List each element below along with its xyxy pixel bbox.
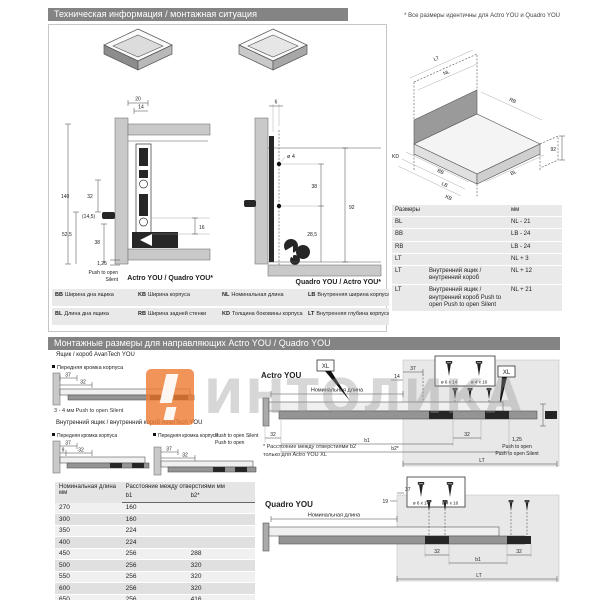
push-open-label: Push to open bbox=[215, 440, 245, 446]
dim-52-5: 52,5 bbox=[62, 232, 72, 238]
cell-nl: 270 bbox=[55, 503, 122, 514]
table-row: 400224 bbox=[55, 537, 255, 548]
legend-code: KD bbox=[222, 311, 230, 317]
cabinet-bottom-panel bbox=[268, 265, 381, 276]
footnote-line2: только для Actro YOU XL bbox=[263, 451, 356, 459]
drawer-iso-icon bbox=[237, 27, 309, 73]
dim-32: 32 bbox=[80, 380, 86, 386]
mounting-hook bbox=[507, 536, 531, 544]
dim-desc: Внутренний ящик / внутренний короб Push … bbox=[426, 285, 508, 311]
cell-b2: 320 bbox=[187, 572, 255, 583]
dim-b2: b2* bbox=[391, 446, 399, 452]
table-row: Размеры мм bbox=[392, 205, 562, 216]
dim-32: 32 bbox=[516, 549, 522, 555]
dim-code: BB bbox=[392, 229, 426, 240]
table-row: 500256320 bbox=[55, 560, 255, 571]
legend-code: LT bbox=[308, 311, 314, 317]
front-bracket bbox=[263, 523, 269, 551]
quadro-runner-drawing: ø 6 x 14 ø 4 x 16 Quadro YOU 37 19 Номин… bbox=[257, 473, 560, 597]
mounting-hook bbox=[213, 467, 225, 472]
mounting-hook bbox=[429, 411, 453, 419]
dim-9: 9 bbox=[62, 448, 65, 454]
dim-value: LB - 24 bbox=[508, 229, 562, 240]
panel-plug bbox=[244, 200, 256, 207]
header-nominal-text: Номинальная длина bbox=[59, 484, 116, 490]
iso-label-bb: BB bbox=[436, 168, 445, 176]
cabinet-side-panel bbox=[255, 118, 268, 264]
inner-avantech-label: Внутренний ящик / внутренний короб AvanT… bbox=[56, 420, 202, 426]
table-row: LT Внутренний ящик / внутренний короб NL… bbox=[392, 266, 562, 284]
table-row: LT Внутренний ящик / внутренний короб Pu… bbox=[392, 285, 562, 311]
legend-item: KDТолщина боковины корпуса bbox=[219, 308, 305, 325]
cell-b1: 256 bbox=[122, 595, 187, 600]
cabinet-front-panel bbox=[53, 373, 60, 405]
dim-14: 14 bbox=[394, 374, 400, 380]
cell-b1: 160 bbox=[122, 514, 187, 525]
legend-label: Внутренняя ширина корпуса bbox=[317, 292, 389, 298]
legend-label: Внутренняя глубина корпуса bbox=[316, 311, 389, 317]
iso-label-bl: BL bbox=[510, 169, 518, 177]
cell-nl: 300 bbox=[55, 514, 122, 525]
cell-b2 bbox=[187, 514, 255, 525]
cell-b1: 256 bbox=[122, 583, 187, 594]
cell-nl: 650 bbox=[55, 595, 122, 600]
dim-28-5: 28,5 bbox=[307, 232, 317, 238]
legend-item: RBШирина задней стенки bbox=[135, 308, 219, 325]
dim-code: BL bbox=[392, 217, 426, 228]
runner-top-rail bbox=[60, 457, 145, 463]
cell-nl: 450 bbox=[55, 549, 122, 560]
fixing-hole bbox=[277, 204, 281, 208]
drawer-bottom-panel bbox=[128, 249, 210, 260]
drawer-iso-icon bbox=[102, 27, 174, 73]
dim-value: NL + 21 bbox=[508, 285, 562, 311]
legend-label: Ширина корпуса bbox=[148, 292, 190, 298]
screw1-label: ø 6 x 14 bbox=[441, 380, 458, 385]
table-row: BB LB - 24 bbox=[392, 229, 562, 240]
dim-32: 32 bbox=[87, 194, 93, 200]
front-edge-label: Передняя кромка корпуса bbox=[57, 365, 124, 371]
runner-top-rail bbox=[269, 402, 503, 411]
header-mm-text: мм bbox=[59, 490, 67, 496]
legend-code: LB bbox=[308, 292, 315, 298]
table-row: 350224 bbox=[55, 526, 255, 537]
dim-desc bbox=[426, 242, 508, 253]
screw2-label: ø 4 x 16 bbox=[471, 380, 488, 385]
dim-code: LT bbox=[392, 254, 426, 265]
cell-b2: 320 bbox=[187, 583, 255, 594]
cross-section-actro: 20 14 140 32 (14,5) 52,5 38 16 1,25 Push… bbox=[60, 94, 215, 286]
dim-desc bbox=[426, 254, 508, 265]
iso-label-rb: RB bbox=[508, 97, 517, 106]
table-row: 300160 bbox=[55, 514, 255, 525]
dim-32: 32 bbox=[270, 432, 276, 438]
dim-38: 38 bbox=[547, 413, 553, 419]
dim-value: NL + 3 bbox=[508, 254, 562, 265]
legend-code: RB bbox=[138, 311, 146, 317]
dim-38: 38 bbox=[94, 240, 100, 246]
table-row: BL NL - 21 bbox=[392, 217, 562, 228]
dim-code: LT bbox=[392, 285, 426, 311]
cell-b1: 224 bbox=[122, 526, 187, 537]
cell-b2: 288 bbox=[187, 549, 255, 560]
legend-code: BL bbox=[55, 311, 62, 317]
table-row: 450256288 bbox=[55, 549, 255, 560]
dim-140: 140 bbox=[61, 194, 70, 200]
iso-label-kd: KD bbox=[392, 154, 399, 160]
xl-label: XL bbox=[503, 370, 511, 376]
table-row: 600256320 bbox=[55, 583, 255, 594]
caption-actro-quadro: Actro YOU / Quadro YOU* bbox=[127, 275, 213, 282]
cell-b2 bbox=[187, 526, 255, 537]
cross-section-quadro: ø 4 6 38 92 28,5 Quadro YOU / Actro YOU* bbox=[233, 94, 383, 286]
silent-label: Silent bbox=[105, 277, 118, 283]
header-nominal: Номинальная длина мм bbox=[55, 482, 122, 503]
iso-label-lt: LT bbox=[433, 55, 440, 63]
top-section-title: Техническая информация / монтажная ситуа… bbox=[48, 8, 348, 21]
dim-6: 6 bbox=[275, 100, 278, 106]
dim-20: 20 bbox=[135, 97, 141, 103]
cabinet-front-panel bbox=[53, 441, 60, 473]
legend-code: NL bbox=[222, 292, 229, 298]
legend-code: KB bbox=[138, 292, 146, 298]
dim-37: 37 bbox=[166, 447, 172, 453]
dim-14-5: (14,5) bbox=[82, 214, 95, 220]
front-bracket bbox=[263, 398, 269, 426]
table-row: LT NL + 3 bbox=[392, 254, 562, 265]
legend-code: BB bbox=[55, 292, 63, 298]
dim-desc bbox=[426, 229, 508, 240]
dim-1-25: 1,25 bbox=[97, 261, 107, 267]
legend-item: BBШирина дна ящика bbox=[52, 289, 135, 306]
legend-item: LBВнутренняя ширина корпуса bbox=[305, 289, 389, 306]
table-row: RB LB - 24 bbox=[392, 242, 562, 253]
cell-b1: 256 bbox=[122, 549, 187, 560]
dim-dia4: ø 4 bbox=[287, 154, 295, 160]
cell-b1: 160 bbox=[122, 503, 187, 514]
mini-drawing-avantech: Передняя кромка корпуса 37 32 bbox=[52, 361, 197, 407]
dim-b1: b1 bbox=[475, 557, 481, 563]
quadro-label: Quadro YOU bbox=[265, 500, 313, 509]
gap-note: 3 - 4 мм Push to open Silent bbox=[54, 408, 123, 414]
nominal-length-label: Номинальная длина bbox=[311, 388, 364, 394]
push-open-label: Push to open bbox=[502, 444, 532, 450]
dim-32: 32 bbox=[464, 432, 470, 438]
dim-1-25: 1,25 bbox=[512, 437, 522, 443]
cell-nl: 600 bbox=[55, 583, 122, 594]
dim-table-header-mm: мм bbox=[508, 205, 562, 216]
dim-32: 32 bbox=[182, 453, 188, 459]
cell-b2: 416 bbox=[187, 595, 255, 600]
runner-top-rail bbox=[60, 389, 190, 395]
nominal-length-label: Номинальная длина bbox=[308, 513, 361, 519]
cabinet-top-panel bbox=[128, 124, 210, 135]
legend-label: Толщина боковины корпуса bbox=[232, 311, 303, 317]
cell-nl: 350 bbox=[55, 526, 122, 537]
cell-b1: 224 bbox=[122, 537, 187, 548]
runner-profile bbox=[269, 136, 274, 262]
legend-item: NLНоминальная длина bbox=[219, 289, 305, 306]
cell-b2 bbox=[187, 503, 255, 514]
cell-b2: 320 bbox=[187, 560, 255, 571]
cabinet-side-panel bbox=[115, 118, 128, 264]
identical-sizes-note: * Все размеры идентичны для Actro YOU и … bbox=[388, 13, 560, 21]
dim-table-header: Размеры bbox=[392, 205, 508, 216]
legend-item: KBШирина корпуса bbox=[135, 289, 219, 306]
caption-quadro-actro: Quadro YOU / Actro YOU* bbox=[296, 279, 382, 286]
table-row: 650256416 bbox=[55, 595, 255, 600]
dim-lt: LT bbox=[476, 573, 481, 579]
panel-plug bbox=[102, 212, 115, 219]
avantech-box-label: Ящик / короб AvanTech YOU bbox=[56, 352, 135, 358]
dim-16: 16 bbox=[199, 225, 205, 231]
dim-32: 32 bbox=[78, 448, 84, 454]
footnote-line1: * Расстояние между отверстиями b2 bbox=[263, 443, 356, 451]
logo-stripe bbox=[163, 407, 176, 420]
roller-unit bbox=[132, 232, 178, 248]
front-edge-label: Передняя кромка корпуса bbox=[57, 433, 117, 439]
mounting-hook bbox=[132, 463, 144, 468]
table-row: Номинальная длина мм Расстояние между от… bbox=[55, 482, 255, 492]
hole-distance-table: Номинальная длина мм Расстояние между от… bbox=[55, 482, 255, 600]
legend-item: BLДлина дна ящика bbox=[52, 308, 135, 325]
front-edge-label: Передняя кромка корпуса bbox=[158, 433, 218, 439]
dim-32: 32 bbox=[434, 549, 440, 555]
dimensions-table: Размеры мм BL NL - 21 BB LB - 24 RB LB -… bbox=[392, 204, 562, 312]
dim-value: LB - 24 bbox=[508, 242, 562, 253]
technical-document-page: Техническая информация / монтажная ситуа… bbox=[0, 0, 600, 600]
legend-label: Ширина задней стенки bbox=[148, 311, 206, 317]
header-b1: b1 bbox=[122, 492, 187, 503]
push-open-label: Push to open bbox=[89, 270, 119, 276]
iso-drawer-diagram: 92 LT NL RB KD BB LB KB BL bbox=[392, 42, 567, 202]
mini-drawing-push: Передняя кромка корпуса Push to open Sil… bbox=[153, 429, 260, 481]
cell-b1: 256 bbox=[122, 572, 187, 583]
iso-label-kb: KB bbox=[444, 194, 453, 202]
cell-nl: 400 bbox=[55, 537, 122, 548]
push-silent-label: Push to open Silent bbox=[215, 433, 259, 439]
header-distance: Расстояние между отверстиями мм bbox=[122, 482, 255, 492]
dim-code: LT bbox=[392, 266, 426, 284]
mounting-hook bbox=[150, 395, 165, 400]
mounting-hook bbox=[425, 536, 449, 544]
runner-bottom-rail bbox=[279, 536, 525, 544]
abbreviation-legend: BBШирина дна ящика KBШирина корпуса NLНо… bbox=[52, 289, 382, 325]
dim-b1: b1 bbox=[364, 438, 370, 444]
cell-b2 bbox=[187, 537, 255, 548]
cabinet-front-panel bbox=[154, 447, 161, 475]
dim-37: 37 bbox=[65, 441, 71, 447]
cell-nl: 550 bbox=[55, 572, 122, 583]
dim-lt: LT bbox=[479, 458, 484, 464]
header-b2: b2* bbox=[187, 492, 255, 503]
dim-desc bbox=[426, 217, 508, 228]
cell-nl: 500 bbox=[55, 560, 122, 571]
runner-top-rail bbox=[161, 461, 253, 467]
dim-37: 37 bbox=[65, 373, 71, 379]
dim-38: 38 bbox=[311, 184, 317, 190]
dim-19: 19 bbox=[382, 499, 388, 505]
table-row: 270160 bbox=[55, 503, 255, 514]
legend-label: Ширина дна ящика bbox=[65, 292, 114, 298]
xl-label: XL bbox=[322, 364, 330, 370]
mounting-hook bbox=[110, 463, 122, 468]
mini-drawing-inner: Передняя кромка корпуса 37 9 32 bbox=[52, 429, 150, 481]
actro-label: Actro YOU bbox=[261, 371, 302, 380]
dim-value: NL - 21 bbox=[508, 217, 562, 228]
mounting-hook bbox=[174, 395, 188, 400]
b2-footnote: * Расстояние между отверстиями b2 только… bbox=[263, 443, 356, 460]
iso-dim-92: 92 bbox=[550, 147, 556, 153]
mounting-hook bbox=[235, 467, 247, 472]
legend-item: LTВнутренняя глубина корпуса bbox=[305, 308, 389, 325]
table-row: 550256320 bbox=[55, 572, 255, 583]
bottom-section-title: Монтажные размеры для направляющих Actro… bbox=[48, 337, 560, 350]
dim-92: 92 bbox=[349, 205, 355, 211]
dim-value: NL + 12 bbox=[508, 266, 562, 284]
legend-label: Длина дна ящика bbox=[64, 311, 109, 317]
legend-label: Номинальная длина bbox=[231, 292, 283, 298]
cell-b1: 256 bbox=[122, 560, 187, 571]
dim-desc: Внутренний ящик / внутренний короб bbox=[426, 266, 508, 284]
dim-37: 37 bbox=[405, 487, 411, 493]
dim-code: RB bbox=[392, 242, 426, 253]
dim-37: 37 bbox=[410, 366, 416, 372]
xl-callout-pointer bbox=[325, 371, 350, 401]
mounting-hook bbox=[485, 411, 509, 419]
runner-top-rail bbox=[269, 527, 499, 536]
dim-14: 14 bbox=[138, 105, 144, 111]
